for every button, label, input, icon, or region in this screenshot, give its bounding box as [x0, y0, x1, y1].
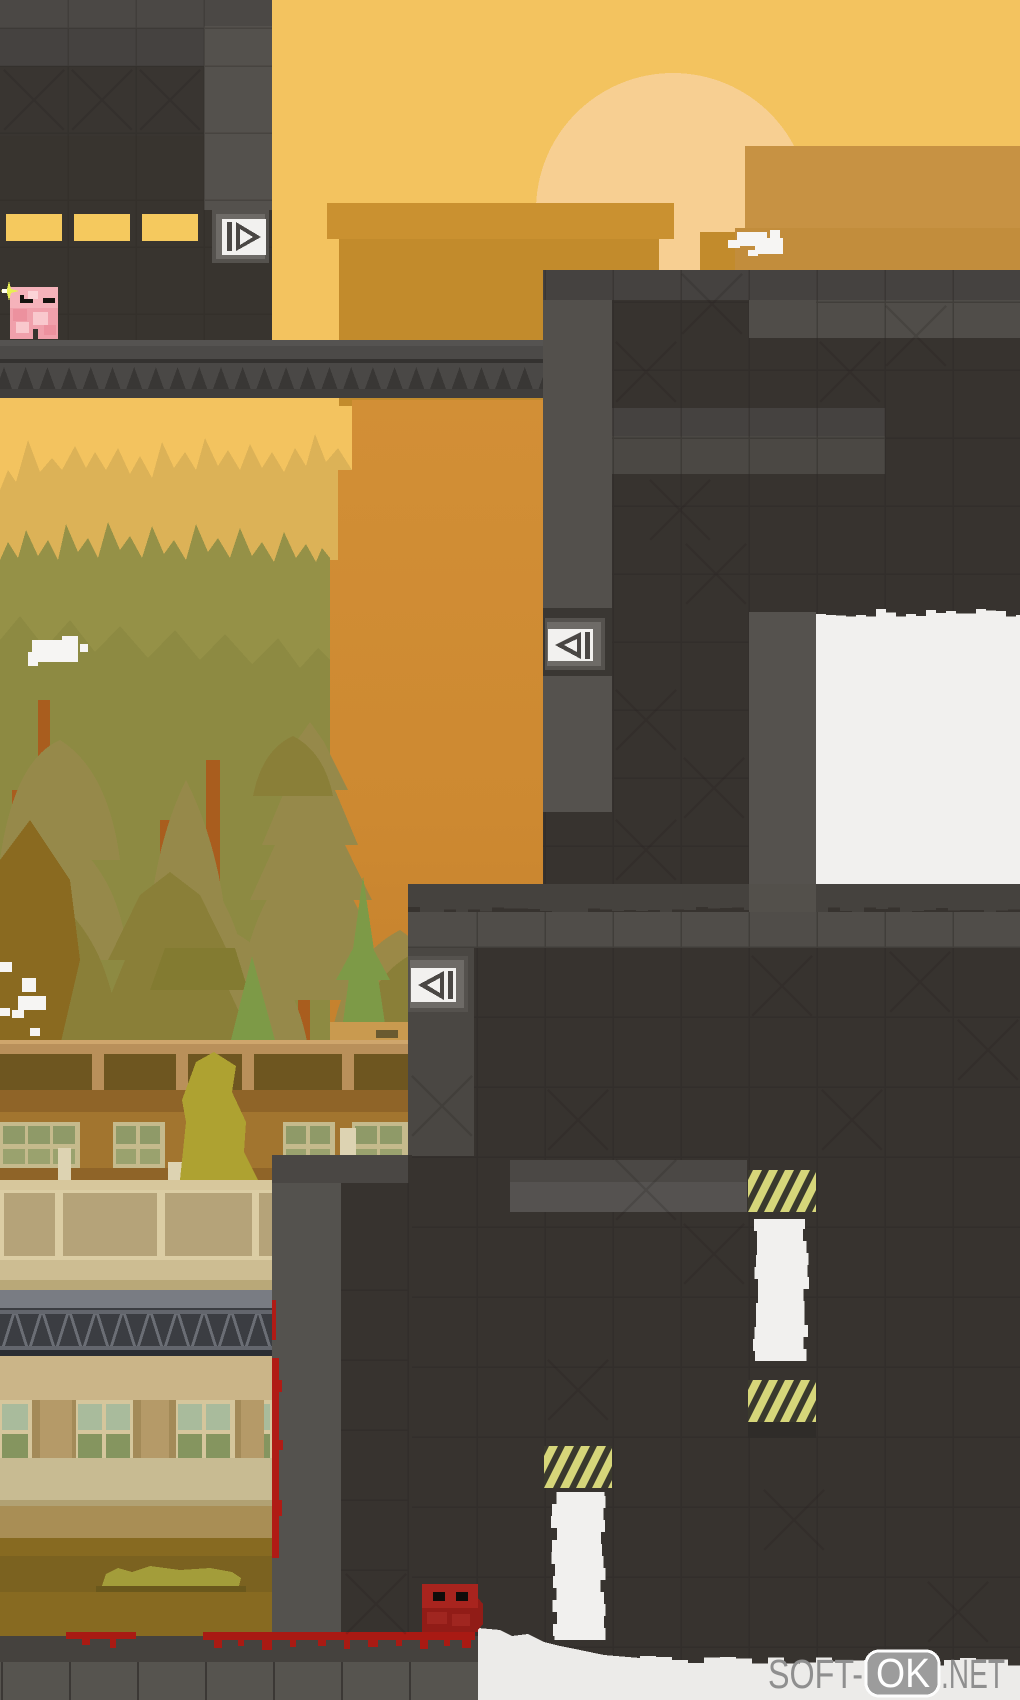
svg-text:.NET: .NET	[941, 1651, 1005, 1697]
svg-text:SOFT-: SOFT-	[768, 1651, 863, 1697]
svg-text:OK: OK	[876, 1650, 930, 1696]
